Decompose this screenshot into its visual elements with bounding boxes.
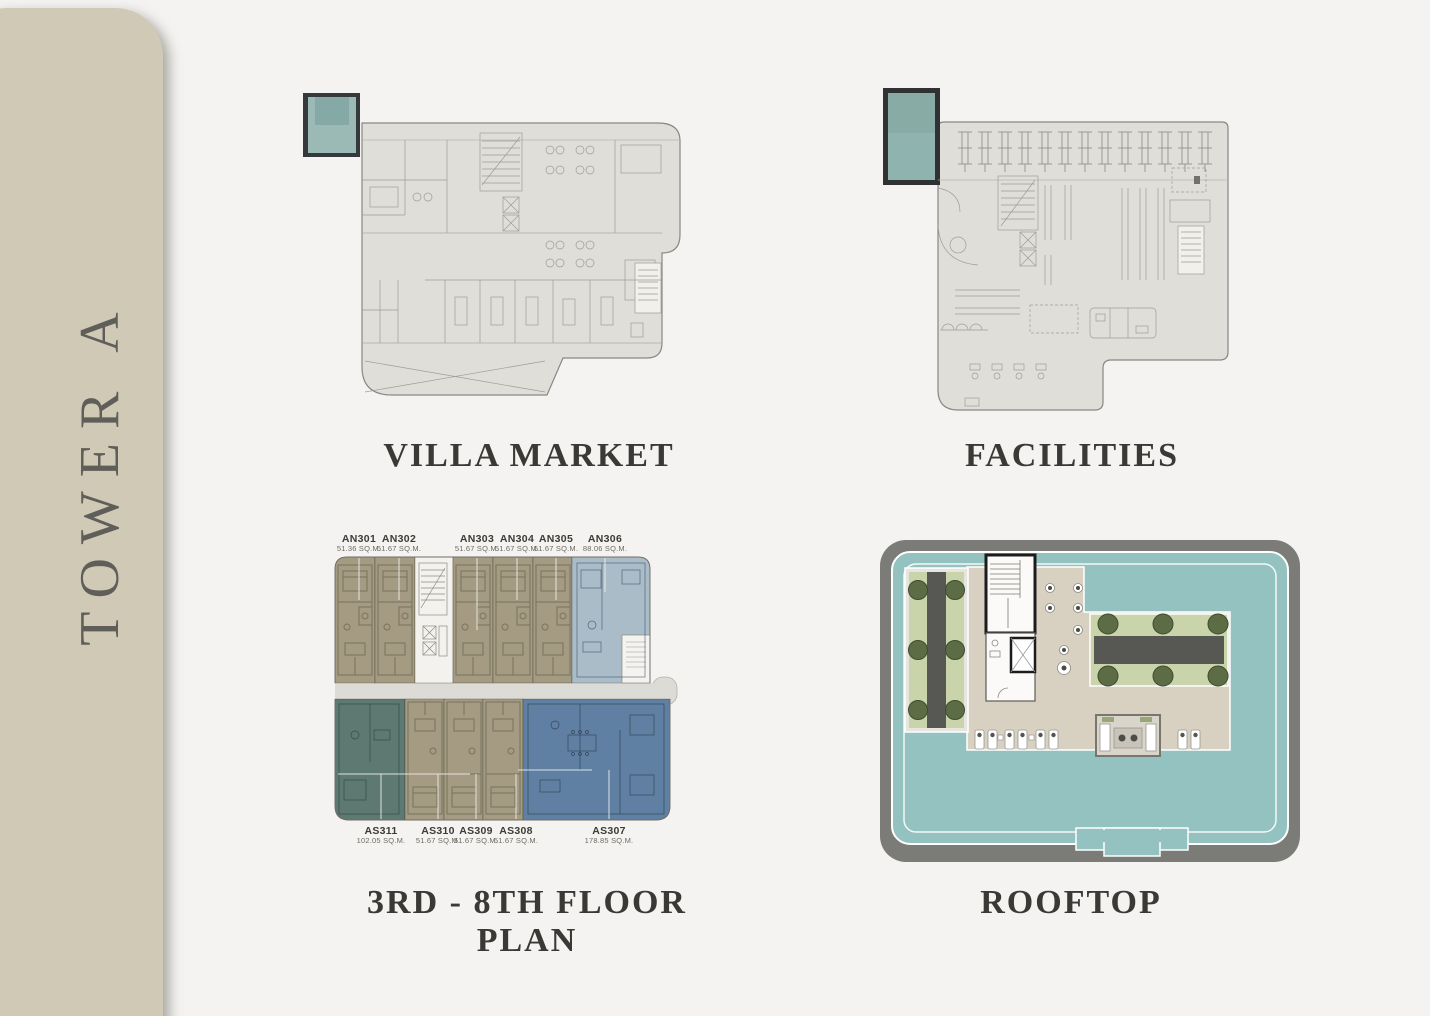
rooftop-panel — [878, 538, 1302, 864]
cabana — [1096, 715, 1160, 756]
unit-label: AN30551.67 SQ.M. — [534, 533, 578, 554]
unit-label: AS307178.85 SQ.M. — [585, 825, 634, 846]
left-garden — [905, 568, 968, 732]
north-east-stairs — [622, 635, 650, 683]
facilities-floor-plan — [870, 80, 1240, 420]
facilities-pool — [883, 88, 940, 185]
villa-market-pool — [303, 93, 360, 157]
unit-label: AS30951.67 SQ.M. — [454, 825, 498, 846]
villa-market-panel — [295, 85, 690, 420]
villa-market-title: VILLA MARKET — [329, 437, 729, 475]
unit-label: AN30151.36 SQ.M. — [337, 533, 381, 554]
tower-title: TOWER A — [68, 298, 132, 645]
unit-label: AS30851.67 SQ.M. — [494, 825, 538, 846]
floor-3-8-panel: AN30151.36 SQ.M. AN30251.67 SQ.M. AN3035… — [330, 530, 680, 875]
floor-3-8-plan — [330, 530, 680, 875]
unit-label: AS311102.05 SQ.M. — [357, 825, 406, 846]
right-garden — [1090, 614, 1228, 686]
facilities-title: FACILITIES — [872, 437, 1272, 475]
floor-3-8-title: 3RD - 8TH FLOOR PLAN — [327, 884, 727, 960]
villa-market-outline — [362, 123, 680, 395]
rooftop-plan — [878, 538, 1302, 864]
unit-label: AN30688.06 SQ.M. — [583, 533, 627, 554]
rooftop-stairs — [986, 555, 1035, 701]
north-units — [335, 557, 650, 683]
facilities-panel — [870, 80, 1240, 420]
rooftop-title: ROOFTOP — [871, 884, 1271, 922]
villa-market-floor-plan — [295, 85, 690, 420]
unit-label: AN30451.67 SQ.M. — [495, 533, 539, 554]
unit-label: AN30351.67 SQ.M. — [455, 533, 499, 554]
unit-label: AN30251.67 SQ.M. — [377, 533, 421, 554]
brochure-page: TOWER A — [0, 0, 1430, 1016]
